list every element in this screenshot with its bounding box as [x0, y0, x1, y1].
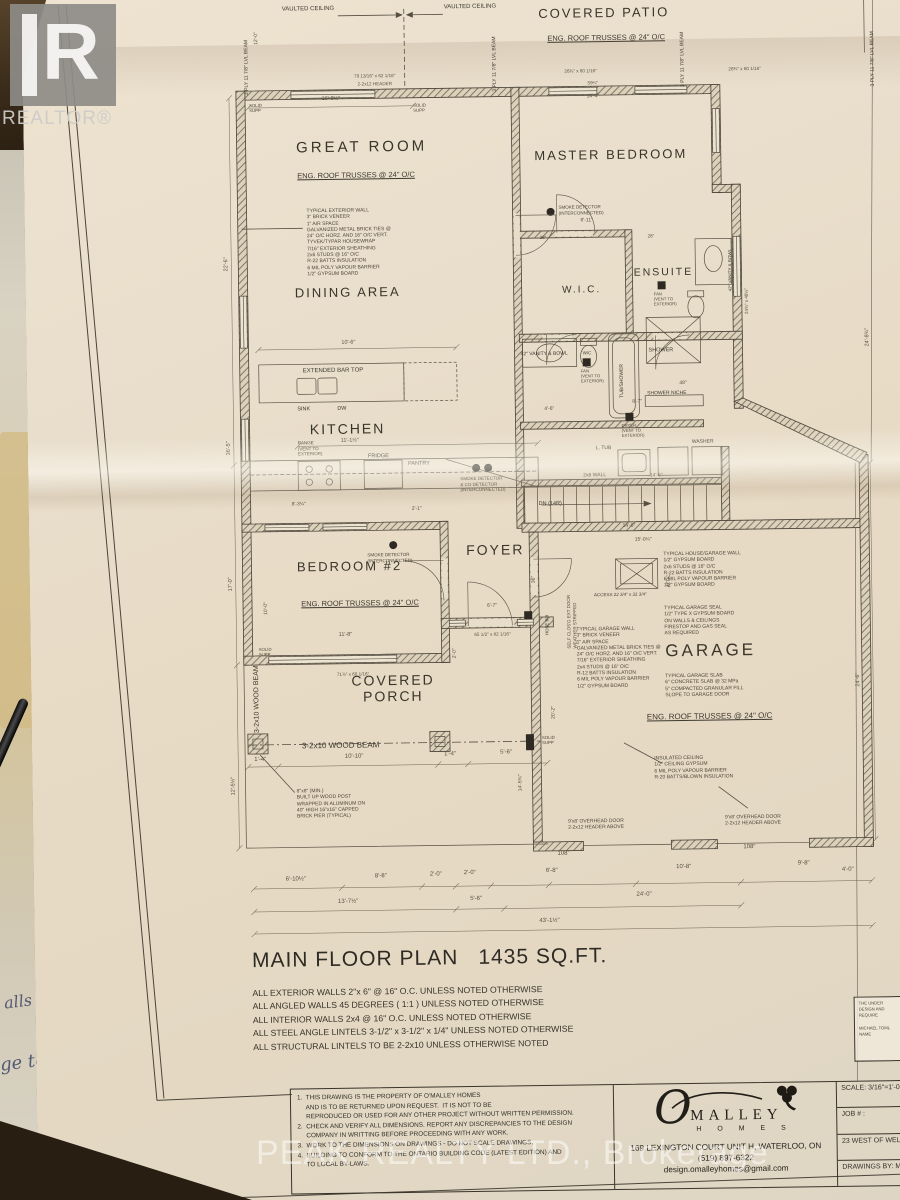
dim: 28"	[540, 235, 547, 240]
spec-house-garage-wall: TYPICAL HOUSE/GARAGE WALL 1/2" GYPSUM BO…	[663, 550, 741, 589]
dim: 48"	[679, 381, 686, 387]
logo-letter-o: O	[654, 1080, 692, 1135]
label-vanity-bath: 42" VANITY & BOWL	[521, 352, 568, 358]
room-label-ensuite: ENSUITE	[634, 267, 694, 280]
label-solid-supp: SOLID SUPP	[259, 647, 272, 657]
dim: 8'-7"	[632, 400, 642, 406]
dim: 8'-3¼"	[292, 502, 306, 508]
dim: 10'-0"	[264, 602, 270, 615]
brokerage-watermark: PEAK REALTY LTD., Brokerage	[256, 1134, 769, 1173]
dim: 12'-5½"	[230, 777, 236, 796]
vault-arrowhead	[396, 12, 403, 18]
spec-built-up-post: 8"x8" (MIN.) BUILT UP WOOD POST WRAPPED …	[297, 787, 366, 819]
dim: 15'-0¼"	[635, 537, 652, 543]
dim: 17'-0"	[228, 577, 234, 591]
dim: 5'-6"	[500, 749, 512, 756]
label-attic-access: ACCESS 22 3/4" x 32 3/4"	[594, 592, 647, 598]
label-shower: SHOWER	[648, 347, 673, 354]
room-label-covered-patio: COVERED PATIO	[538, 5, 669, 21]
realtor-logo-r: R	[42, 6, 100, 98]
drawing-sheet: COVERED PATIO GREAT ROOM MASTER BEDROOM …	[21, 0, 900, 1200]
dim: 36'-5"	[226, 441, 232, 455]
label-vaulted-ceiling-right: VAULTED CEILING	[444, 4, 497, 11]
label-shower-niche: SHOWER NICHE	[647, 391, 687, 397]
job-cell: JOB # :	[838, 1107, 900, 1135]
realtor-logo-bar	[22, 14, 37, 96]
dim: 10'-6"	[341, 340, 355, 346]
label-solid-supp: SOLID SUPP	[413, 103, 426, 113]
dim: 12'-0"	[254, 32, 260, 45]
dim: 2'-0"	[430, 871, 442, 878]
designer-stamp-box: THE UNDER DESIGN AND REQUIRE MICHAEL TOM…	[854, 996, 900, 1062]
logo-name: MALLEY	[690, 1107, 783, 1125]
drawn-by-cell: DRAWINGS BY: M.T.	[838, 1159, 900, 1186]
dim: 10'-8"	[676, 864, 691, 871]
dim: 11'-1½"	[341, 438, 359, 444]
floor-plan-drawing: COVERED PATIO GREAT ROOM MASTER BEDROOM …	[0, 0, 900, 1200]
dim-window: 26¾" x 60 1/16"	[564, 68, 596, 74]
dim: 14'-6"	[623, 524, 636, 530]
room-label-master-bedroom: MASTER BEDROOM	[534, 147, 687, 164]
dim: 2'-0"	[453, 648, 459, 658]
dim: 1'-4"	[254, 757, 266, 764]
realtor-logo-watermark: R	[10, 4, 116, 106]
room-label-covered-porch: COVERED PORCH	[351, 673, 435, 706]
label-tub-shower: TUB/SHOWER	[620, 364, 626, 398]
note-smoke-detector-bedroom2: SMOKE DETECTOR (INTERCONNECTED)	[367, 552, 412, 564]
label-vanity-ensuite: 42" VANITY & BOWL	[727, 249, 733, 292]
label-lvl-beam: 3 PLY 11 7/8" LVL BEAM	[244, 40, 250, 95]
label-wc: W/C	[583, 350, 592, 355]
dim: 24'-0"	[636, 892, 651, 899]
note-fan-ensuite: FAN (VENT TO EXTERIOR)	[654, 291, 677, 307]
stairs-arrowhead	[644, 500, 652, 506]
dim: 6'-7"	[487, 604, 497, 610]
room-label-foyer: FOYER	[466, 542, 524, 558]
label-solid-supp: SOLID SUPP	[542, 735, 555, 745]
label-2x6-wall: 2x6 WALL	[583, 473, 606, 479]
dim: 10'-10"	[345, 754, 364, 761]
dim: 5'-6"	[470, 896, 482, 903]
note-header: 2-2x12 HEADER	[358, 81, 393, 87]
label-attic: ATTIC	[666, 575, 671, 588]
note-smoke-detector-master: SMOKE DETECTOR (INTERCONNECTED)	[558, 204, 603, 216]
realtor-watermark-text: REALTOR®	[2, 108, 112, 130]
spec-insulated-ceiling: INSULATED CEILING 1/2" CEILING GYPSUM 6 …	[654, 754, 733, 780]
dim: 6'-10½"	[286, 876, 306, 883]
room-label-garage: GARAGE	[665, 640, 756, 660]
dim-door: 65 1/2" x 82 1/16"	[474, 631, 510, 637]
label-lvl-beam: 3 PLY 11 7/8" LVL BEAM	[870, 31, 876, 86]
dim-window: 71⅞" x 60 1/16"	[337, 671, 369, 677]
truss-note-garage: ENG. ROOF TRUSSES @ 24" O/C	[647, 712, 773, 723]
dim: 1'-4"	[444, 751, 456, 758]
dim: 14'-4"	[587, 94, 600, 100]
handwriting-fragment: alls	[3, 990, 33, 1012]
room-label-great-room: GREAT ROOM	[296, 139, 427, 158]
note-overhead-door-left: 9'x8' OVERHEAD DOOR 2-2x12 HEADER ABOVE	[568, 818, 624, 831]
dim: 11'-8"	[339, 632, 353, 638]
spec-garage-seal: TYPICAL GARAGE SEAL 1/2" TYPE X GYPSUM B…	[664, 604, 734, 636]
dim: 36"	[532, 576, 538, 583]
title-block-info: SCALE: 3/16"=1'-0" JOB # : 23 WEST OF WE…	[837, 1081, 900, 1186]
dim-108: 108"	[557, 851, 569, 858]
plan-title-area: 1435 SQ.FT.	[478, 944, 607, 969]
note-fan-laundry: DRYER (VENT TO EXTERIOR)	[622, 423, 645, 439]
label-dw: DW	[337, 406, 346, 412]
spec-garage-slab: TYPICAL GARAGE SLAB 6" CONCRETE SLAB @ 3…	[665, 672, 743, 698]
photo-of-floor-plan: alls ge to	[0, 0, 900, 1200]
dim: 22'-6"	[223, 257, 229, 271]
label-pantry: PANTRY	[408, 461, 430, 467]
dim: 24'-8¾"	[864, 328, 870, 347]
room-label-wic: W.I.C.	[562, 284, 601, 296]
truss-note-great-room: ENG. ROOF TRUSSES @ 24" O/C	[297, 171, 415, 181]
label-laundry-tub: L. TUB	[596, 446, 612, 452]
dim: 8'-8"	[375, 873, 387, 880]
project-cell: 23 WEST OF WELLINGTON	[838, 1133, 900, 1161]
label-washer: WASHER	[692, 440, 714, 446]
logo-homes: H O M E S	[696, 1125, 793, 1133]
room-label-kitchen: KITCHEN	[310, 421, 386, 438]
dim: 13'-7½"	[338, 899, 358, 906]
label-sink: SINK	[297, 406, 310, 412]
dim-108: 108"	[743, 844, 755, 851]
plan-general-notes: ALL EXTERIOR WALLS 2"x 6" @ 16" O.C. UNL…	[252, 983, 573, 1054]
note-smoke-co-detector: SMOKE DETECTOR & CO DETECTOR (INTERCONNE…	[460, 476, 505, 493]
dim: 6'-8"	[546, 868, 558, 875]
note-range: RANGE (VENT TO EXTERIOR)	[298, 440, 323, 457]
dim-total-width: 43'-1½"	[539, 918, 559, 925]
dim: 9'-8"	[798, 860, 810, 867]
dim: 4'-6"	[544, 407, 554, 413]
spec-exterior-wall: TYPICAL EXTERIOR WALL 3" BRICK VENEER 1"…	[307, 207, 392, 277]
dim: 14'-5¾"	[518, 774, 524, 791]
plan-title-name: MAIN FLOOR PLAN	[252, 946, 459, 972]
dim: 59¼"	[587, 80, 598, 85]
dim: 14'-6"	[650, 473, 663, 479]
label-wood-beam: 3-2x10 WOOD BEAM	[302, 741, 379, 751]
truss-note-patio: ENG. ROOF TRUSSES @ 24" O/C	[547, 33, 665, 43]
label-hose-bib: HOSE BIB	[545, 615, 550, 635]
label-wood-beam-vertical: 3-2x10 WOOD BEAM	[253, 665, 262, 733]
note-self-closing-door: SELF CLOS'G EXT DOOR WEATHER STRIPPED	[566, 595, 578, 649]
dim: 28"	[648, 233, 655, 238]
vault-arrowhead	[406, 12, 413, 18]
dim: 20'-2"	[551, 706, 557, 719]
label-lvl-beam: 3 PLY 11 7/8" LVL BEAM	[680, 32, 686, 87]
dim: 4'-0"	[842, 867, 854, 874]
room-label-dining-area: DINING AREA	[295, 285, 401, 301]
spec-garage-wall: TYPICAL GARAGE WALL 3" BRICK VENEER 1" A…	[576, 625, 661, 689]
label-vaulted-ceiling-left: VAULTED CEILING	[282, 6, 335, 13]
dim: 2'-1"	[412, 507, 422, 513]
dim-window: 24¾" x 48¼"	[744, 288, 750, 314]
note-fan-bath: FAN (VENT TO EXTERIOR)	[581, 368, 604, 384]
scale-cell: SCALE: 3/16"=1'-0"	[837, 1081, 900, 1109]
dim: 8'-11"	[580, 218, 592, 224]
label-stairs-dn: DN (14R)	[539, 501, 562, 507]
dim-window: 26¾" x 60 1/16"	[728, 66, 760, 72]
dim: 24'-6"	[855, 673, 861, 687]
label-solid-supp: SOLID SUPP	[249, 103, 262, 113]
dim: 2'-0"	[464, 870, 476, 877]
label-extended-bar-top: EXTENDED BAR TOP	[303, 367, 364, 375]
label-fridge: FRIDGE	[368, 453, 389, 459]
dim: 16'-8½"	[322, 96, 341, 102]
truss-note-bedroom2: ENG. ROOF TRUSSES @ 24" O/C	[301, 599, 419, 609]
label-lvl-beam: 3 PLY 11 7/8" LVL BEAM	[492, 36, 498, 91]
note-overhead-door-right: 9'x8' OVERHEAD DOOR 2-2x12 HEADER ABOVE	[725, 814, 781, 827]
dim-window: 79 13/16" x 62 1/16"	[354, 73, 395, 79]
